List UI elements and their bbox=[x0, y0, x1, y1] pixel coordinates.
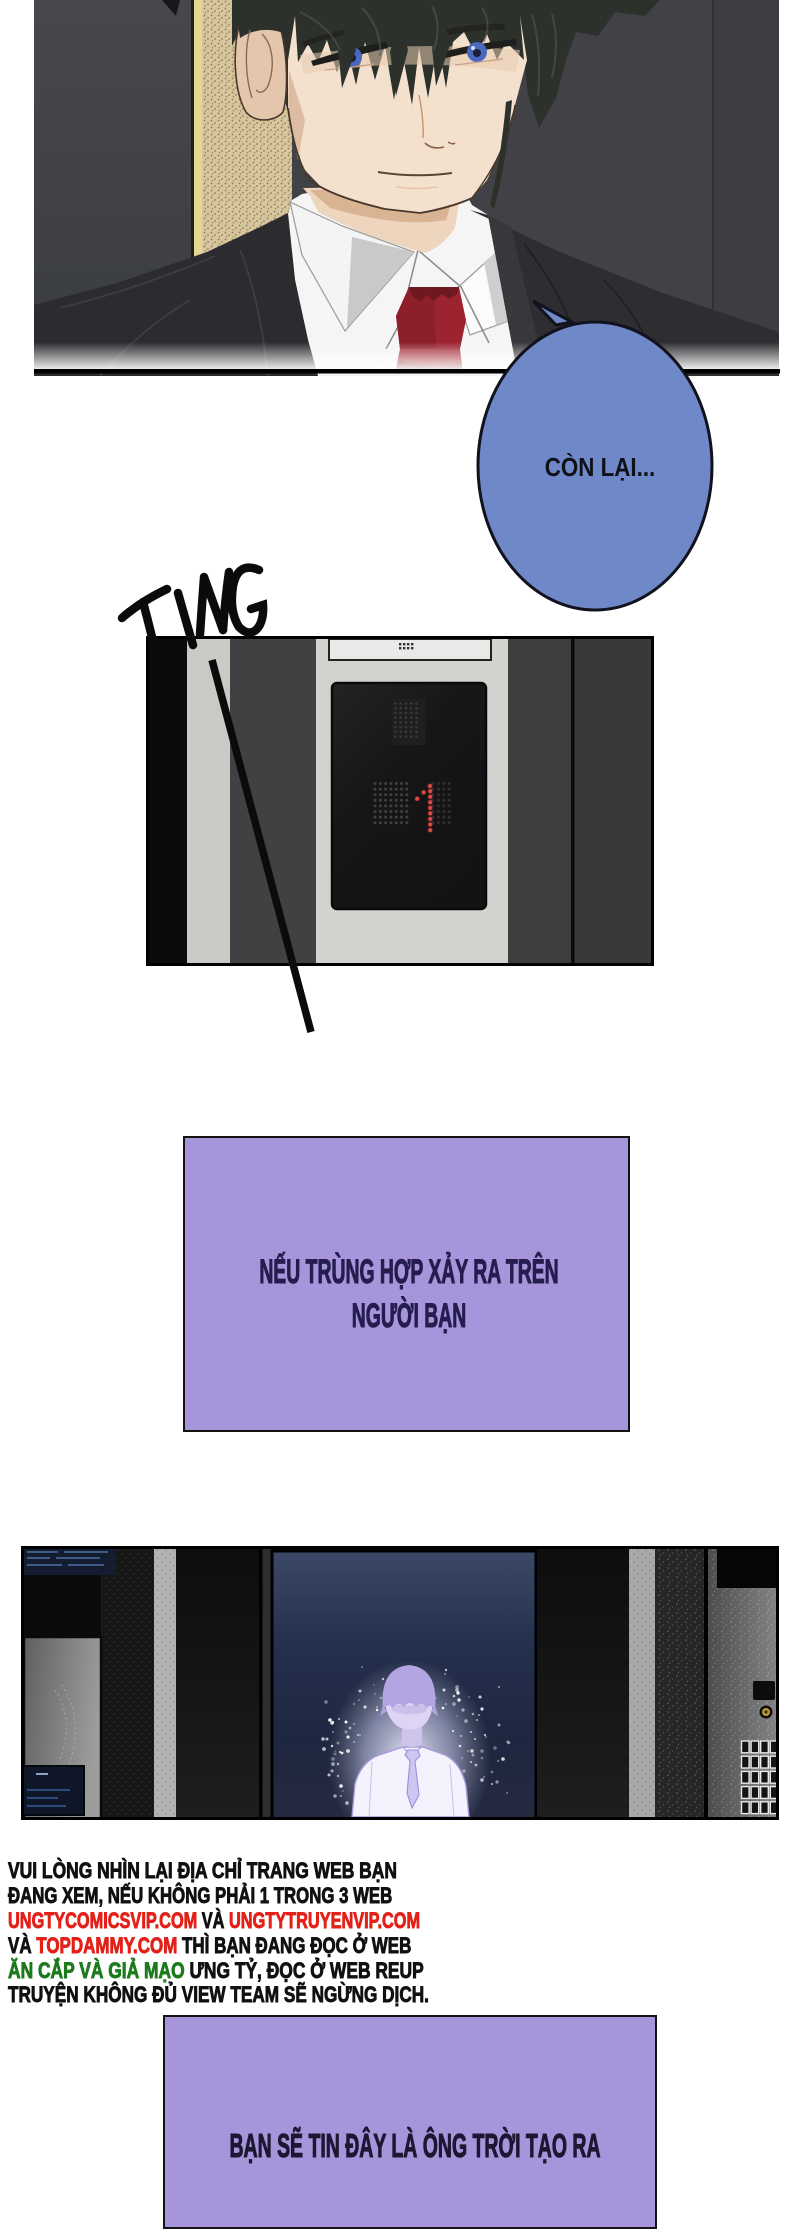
svg-text:CÒN LẠI...: CÒN LẠI... bbox=[545, 452, 655, 482]
